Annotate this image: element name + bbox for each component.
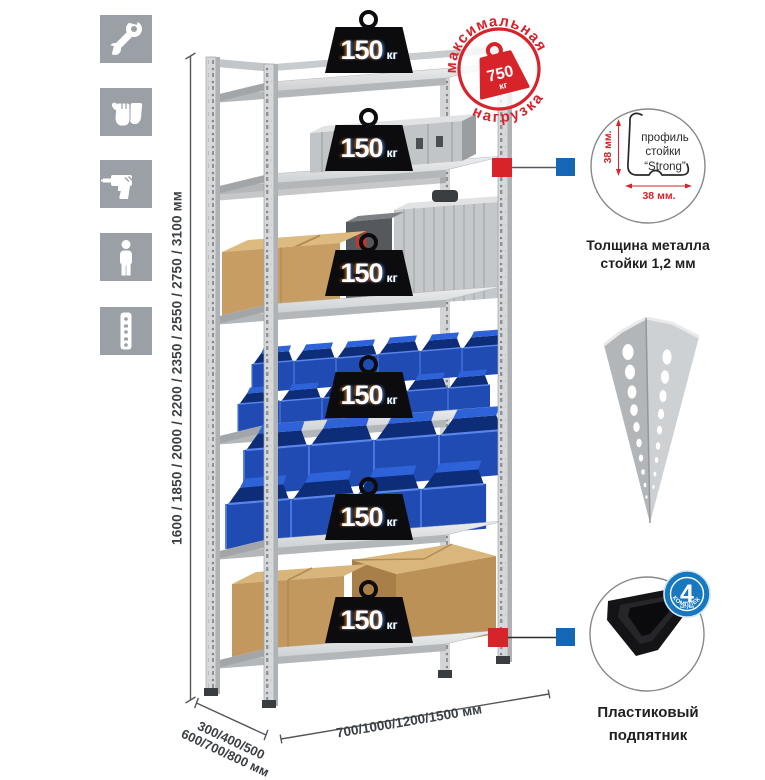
perforated-profile-icon (100, 307, 152, 355)
weight-ring (359, 10, 378, 29)
height-dimension-label: 1600 / 1850 / 2000 / 2200 / 2350 / 2550 … (170, 191, 185, 545)
foot-caption-line1: Пластиковый (578, 702, 718, 725)
foot-caption: Пластиковый подпятник (578, 702, 718, 747)
weight-value: 150 (340, 605, 382, 636)
profile-label-1: профиль (641, 132, 689, 144)
shelf-weight-1: 150 кг (325, 27, 413, 73)
shelf-weight-5: 150 кг (325, 494, 413, 540)
weight-value: 150 (340, 35, 382, 66)
weight-value: 150 (340, 258, 382, 289)
weight-unit: кг (387, 393, 398, 407)
marker-red-bottom (488, 628, 508, 647)
weight-unit: кг (387, 48, 398, 62)
marker-red-top (492, 158, 512, 177)
weight-ring (359, 355, 378, 374)
weight-unit: кг (387, 515, 398, 529)
shelf-weight-6: 150 кг (325, 597, 413, 643)
weight-ring (359, 477, 378, 496)
profile-dim-horizontal: 38 мм. (642, 190, 675, 202)
weight-unit: кг (387, 146, 398, 160)
weight-unit: кг (387, 618, 398, 632)
person-icon (100, 233, 152, 281)
profile-caption: Толщина металла стойки 1,2 мм (578, 236, 718, 272)
weight-value: 150 (340, 380, 382, 411)
marker-blue-bottom (556, 628, 575, 646)
product-infographic: { "colors": { "accent_red": "#d7232a", "… (0, 0, 765, 765)
profile-label-2: стойки (645, 146, 680, 158)
marker-blue-top (556, 158, 575, 176)
profile-detail: 38 мм. 38 мм. профиль стойки “Strong” (591, 109, 705, 223)
shelf-weight-3: 150 кг (325, 250, 413, 296)
foot-caption-line2: подпятник (578, 725, 718, 748)
weight-ring (359, 108, 378, 127)
height-dimension-line (186, 53, 196, 703)
profile-caption-line2: стойки 1,2 мм (578, 254, 718, 272)
weight-value: 150 (340, 133, 382, 164)
shelf-weight-2: 150 кг (325, 125, 413, 171)
gloves-icon (100, 88, 152, 136)
corner-post-image (604, 318, 699, 523)
profile-label-3: “Strong” (644, 161, 686, 173)
weight-ring (359, 580, 378, 599)
weight-unit: кг (387, 271, 398, 285)
wrench-icon (100, 15, 152, 63)
profile-dim-vertical: 38 мм. (602, 130, 614, 163)
drill-icon (100, 160, 152, 208)
shelf-weight-4: 150 кг (325, 372, 413, 418)
profile-caption-line1: Толщина металла (578, 236, 718, 254)
weight-ring (359, 233, 378, 252)
weight-value: 150 (340, 502, 382, 533)
